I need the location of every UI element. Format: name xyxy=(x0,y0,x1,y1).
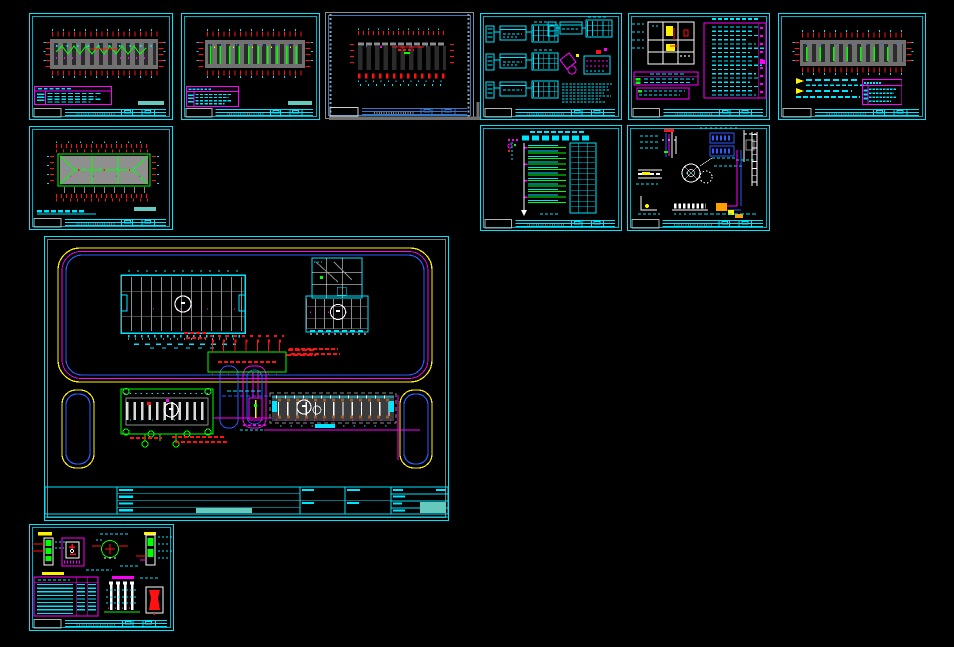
roof-plan-sheet-title-strip xyxy=(34,219,166,228)
clamp-detail xyxy=(92,534,128,558)
manifold-detail xyxy=(104,583,140,612)
legend-notes-sheet-frame[interactable] xyxy=(629,14,770,120)
building-3[interactable] xyxy=(121,389,228,448)
riser-diagram-content[interactable] xyxy=(508,132,596,216)
drawing-title-highlight xyxy=(288,101,312,105)
floor-plan-sheet-1-content[interactable] xyxy=(34,30,164,105)
comb-detail xyxy=(672,206,708,214)
notes-block xyxy=(562,84,612,102)
drawing-title-highlight xyxy=(138,101,164,105)
viewport-sheet-selected-title-strip xyxy=(330,108,467,117)
riser-ladder[interactable] xyxy=(521,143,547,216)
building-4[interactable] xyxy=(270,393,396,428)
detail-box xyxy=(648,22,694,64)
legend-table[interactable] xyxy=(862,80,902,105)
hook-detail xyxy=(638,196,660,214)
riser-grid xyxy=(570,143,596,213)
small-table-1[interactable] xyxy=(634,72,698,85)
building-plan[interactable] xyxy=(356,40,448,72)
distribution-schematic-sheet-title-strip xyxy=(485,109,615,118)
panel-group-3 xyxy=(486,81,558,98)
channel-detail-2 xyxy=(136,532,172,565)
floor-plan-sheet-2-content[interactable] xyxy=(186,30,312,106)
titleblock[interactable] xyxy=(44,487,449,517)
panel-group-1 xyxy=(486,22,558,42)
arrester-detail xyxy=(146,587,163,615)
floor-plan-sheet-3-title-strip xyxy=(783,109,919,118)
viewport-sheet-selected-frame[interactable] xyxy=(326,13,474,119)
channel-detail-1 xyxy=(32,532,66,565)
roof-outline[interactable] xyxy=(58,154,150,190)
small-table-2[interactable] xyxy=(637,88,689,99)
building-2[interactable] xyxy=(286,258,368,355)
drawing-canvas xyxy=(0,0,954,647)
detail-labels xyxy=(632,24,644,48)
viewport-sheet-content[interactable] xyxy=(329,29,480,120)
legend-table[interactable] xyxy=(186,87,238,107)
legend-notes-content[interactable] xyxy=(632,19,766,99)
grounding-details-sheet-title-strip xyxy=(34,620,167,629)
installation-details-sheet-title-strip xyxy=(632,220,763,229)
riser-header xyxy=(522,132,592,138)
grounding-details-content[interactable] xyxy=(32,532,172,616)
viewport-shadow-bar xyxy=(329,117,480,121)
riser-diagram-sheet-title-strip xyxy=(485,220,615,229)
channel-detail xyxy=(636,170,662,184)
fan-motor-detail xyxy=(682,158,742,183)
cad-model-space xyxy=(0,0,954,647)
site-plan-content[interactable] xyxy=(44,248,449,517)
meter-symbol-cluster xyxy=(560,48,610,74)
floor-plan-sheet-3-content[interactable] xyxy=(794,31,913,104)
floor-plan-sheet-2-title-strip xyxy=(186,109,313,118)
material-table[interactable] xyxy=(34,577,98,616)
bracket-detail xyxy=(640,129,680,158)
viewport-shadow-stub xyxy=(477,102,480,120)
legend-table[interactable] xyxy=(34,86,111,104)
floor-plan-sheet-3-frame[interactable] xyxy=(779,14,926,120)
installation-details-content[interactable] xyxy=(636,128,758,218)
building-plan[interactable] xyxy=(800,40,906,66)
building-plan[interactable] xyxy=(50,39,158,69)
distribution-schematic-content[interactable] xyxy=(486,17,612,102)
roof-plan-content[interactable] xyxy=(37,142,158,214)
legend-notes-sheet-title-strip xyxy=(633,109,763,118)
drawing-title xyxy=(37,207,156,214)
panel-group-2 xyxy=(486,50,558,70)
symbol-legend-table[interactable] xyxy=(704,19,766,98)
floor-plan-sheet-1-title-strip xyxy=(34,109,166,118)
weld-detail xyxy=(62,538,84,566)
junction-box-detail xyxy=(710,130,756,162)
building-plan[interactable] xyxy=(205,40,305,68)
keynotes xyxy=(796,78,868,97)
